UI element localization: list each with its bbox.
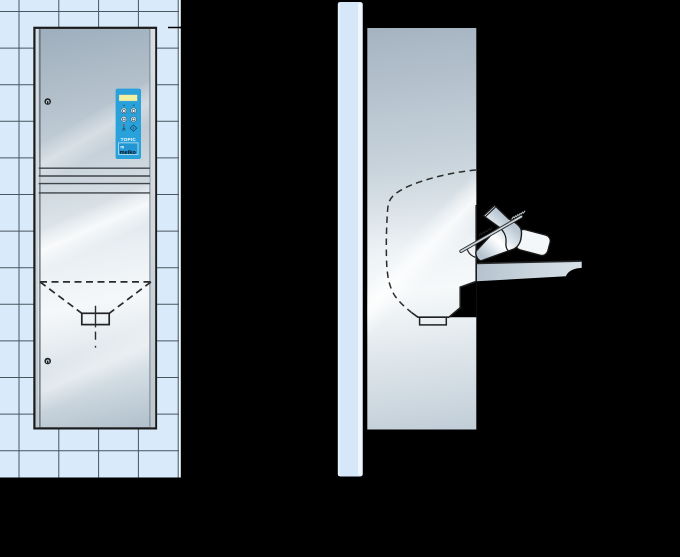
svg-text:TOPIC: TOPIC (121, 137, 137, 142)
svg-text:meiko: meiko (120, 150, 137, 156)
